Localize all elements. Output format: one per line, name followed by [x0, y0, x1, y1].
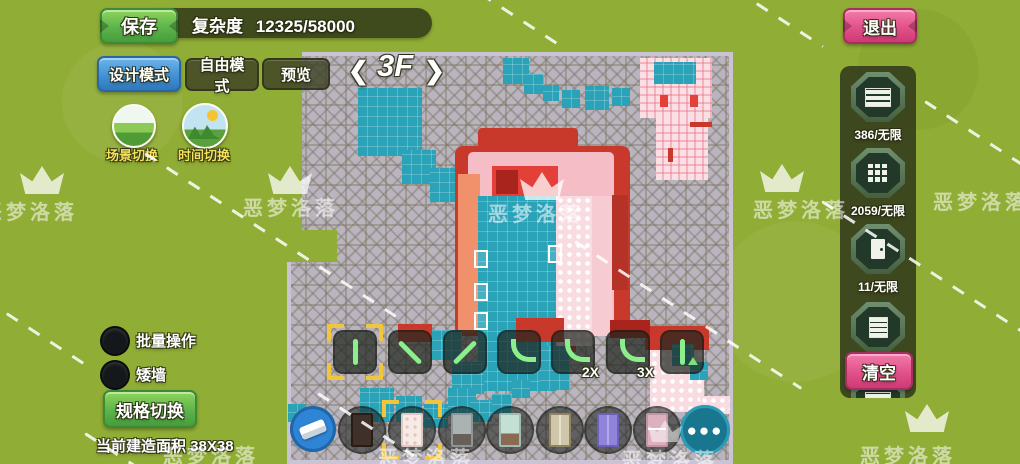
preview-button[interactable]: 预览 — [262, 58, 330, 90]
more-icon: ●●● — [687, 422, 724, 439]
pool-tile — [654, 62, 696, 84]
furniture-icon — [869, 317, 888, 338]
hotbar-slot-door-pink[interactable] — [633, 406, 681, 454]
mint-door-icon — [499, 413, 521, 447]
scene-switch-label: 场景切换 — [98, 145, 166, 164]
building-wall-step — [612, 195, 628, 290]
crown-icon — [905, 404, 949, 432]
wall-tool-diagonal-down[interactable] — [388, 330, 432, 374]
free-mode-button[interactable]: 自由模式 — [185, 58, 259, 91]
low-wall-label: 矮墙 — [136, 364, 166, 385]
straight-wall-icon — [353, 339, 358, 365]
wall-tool-curve-2x[interactable]: 2X — [551, 330, 595, 374]
teal-tile-block — [524, 74, 544, 94]
purple-door-icon — [597, 413, 619, 447]
build-area-label: 当前建造面积 38X38 — [96, 435, 234, 456]
crown-icon — [760, 164, 804, 192]
brick-wall-icon — [865, 88, 891, 107]
teal-tile-block — [612, 88, 630, 106]
hotbar-slot-door-white[interactable] — [388, 406, 436, 454]
wall-tool-curve[interactable] — [497, 330, 541, 374]
teal-tile-block — [358, 88, 422, 156]
red-furniture — [690, 95, 698, 107]
teal-tile-block — [562, 90, 580, 108]
exit-button[interactable]: 退出 — [843, 8, 917, 44]
curved-wall-icon — [620, 339, 645, 362]
door-icon — [871, 239, 885, 259]
white-door-icon — [401, 413, 423, 447]
teal-tile-block — [512, 380, 530, 398]
design-mode-button[interactable]: 设计模式 — [97, 56, 181, 92]
pink-door-icon — [646, 413, 668, 447]
low-wall-toggle[interactable] — [100, 360, 130, 390]
material-item-door[interactable] — [851, 224, 905, 274]
batch-operation-toggle[interactable] — [100, 326, 130, 356]
diagonal-wall-icon — [453, 340, 478, 365]
complexity-label: 复杂度 — [192, 17, 243, 36]
material-item-furniture[interactable] — [851, 302, 905, 352]
hotbar-slot-door-mint[interactable] — [486, 406, 534, 454]
watermark-text: 恶梦洛落 — [933, 186, 1020, 215]
wall-tool-endpoint[interactable] — [660, 330, 704, 374]
red-furniture — [690, 122, 712, 127]
teal-tile-block — [543, 85, 559, 101]
multiplier-badge: 2X — [582, 364, 599, 380]
floor-next-button[interactable]: ❯ — [424, 56, 445, 86]
crown-icon — [20, 166, 64, 194]
floor-tile-icon — [868, 164, 889, 182]
more-items-button[interactable]: ●●● — [680, 405, 730, 455]
clear-button[interactable]: 清空 — [845, 352, 913, 390]
teal-tile-block — [585, 86, 609, 110]
material-count: 2059/无限 — [840, 202, 916, 219]
red-furniture — [668, 148, 673, 162]
curved-wall-icon — [565, 339, 590, 362]
door-frame — [548, 245, 562, 263]
watermark-text: 恶梦洛落 — [753, 194, 849, 223]
dashed-line — [0, 298, 86, 366]
wall-tool-straight[interactable] — [333, 330, 377, 374]
beige-door-icon — [549, 413, 571, 447]
dashed-line — [924, 100, 1020, 173]
scene-switch-icon[interactable] — [112, 104, 156, 148]
eraser-button[interactable] — [290, 406, 336, 452]
hotbar-slot-door-beige[interactable] — [536, 406, 584, 454]
door-frame — [474, 312, 488, 330]
hotbar-slot-door-gray[interactable] — [438, 406, 486, 454]
material-item-wall[interactable] — [851, 72, 905, 122]
multiplier-badge: 3X — [637, 364, 654, 380]
building-roof-block — [496, 170, 518, 194]
wall-tool-curve-3x[interactable]: 3X — [606, 330, 650, 374]
watermark-text: 恶梦洛落 — [0, 196, 78, 225]
material-count: 11/无限 — [840, 278, 916, 295]
time-switch-label: 时间切换 — [170, 145, 238, 164]
diagonal-wall-icon — [398, 340, 423, 365]
wall-tool-diagonal-up[interactable] — [443, 330, 487, 374]
hotbar-slot-door-brown[interactable] — [338, 406, 386, 454]
stairs-icon — [865, 392, 891, 399]
dashed-line — [734, 0, 824, 48]
spec-switch-button[interactable]: 规格切换 — [103, 390, 197, 428]
complexity-bar: 复杂度 12325/58000 — [140, 8, 432, 38]
wall-endpoint-icon — [680, 339, 685, 365]
complexity-value: 12325/58000 — [256, 17, 355, 36]
checkered-room — [656, 118, 708, 180]
building-floor-pink-strip — [592, 196, 612, 336]
batch-operation-label: 批量操作 — [136, 330, 196, 351]
curved-wall-icon — [511, 339, 536, 362]
door-frame — [474, 250, 488, 268]
floor-plan-canvas[interactable] — [287, 52, 733, 464]
material-item-floor[interactable] — [851, 148, 905, 198]
hotbar-slot-door-purple[interactable] — [584, 406, 632, 454]
time-switch-icon[interactable] — [182, 103, 228, 149]
material-count: 386/无限 — [840, 126, 916, 143]
red-furniture — [660, 95, 668, 107]
save-button[interactable]: 保存 — [100, 8, 178, 44]
floor-label: 3F — [377, 48, 413, 84]
build-mode-screen: 复杂度 12325/58000 保存 设计模式 自由模式 预览 场景切换 时间切… — [0, 0, 1020, 464]
door-frame — [474, 283, 488, 301]
brown-door-icon — [351, 413, 373, 447]
dashed-line — [479, 0, 565, 49]
eraser-icon — [299, 418, 328, 440]
gray-door-icon — [451, 413, 473, 447]
material-panel: 386/无限 2059/无限 11/无限 91/无限 — [840, 66, 916, 398]
watermark-text: 恶梦洛落 — [860, 440, 956, 464]
floor-prev-button[interactable]: ❮ — [348, 56, 369, 86]
